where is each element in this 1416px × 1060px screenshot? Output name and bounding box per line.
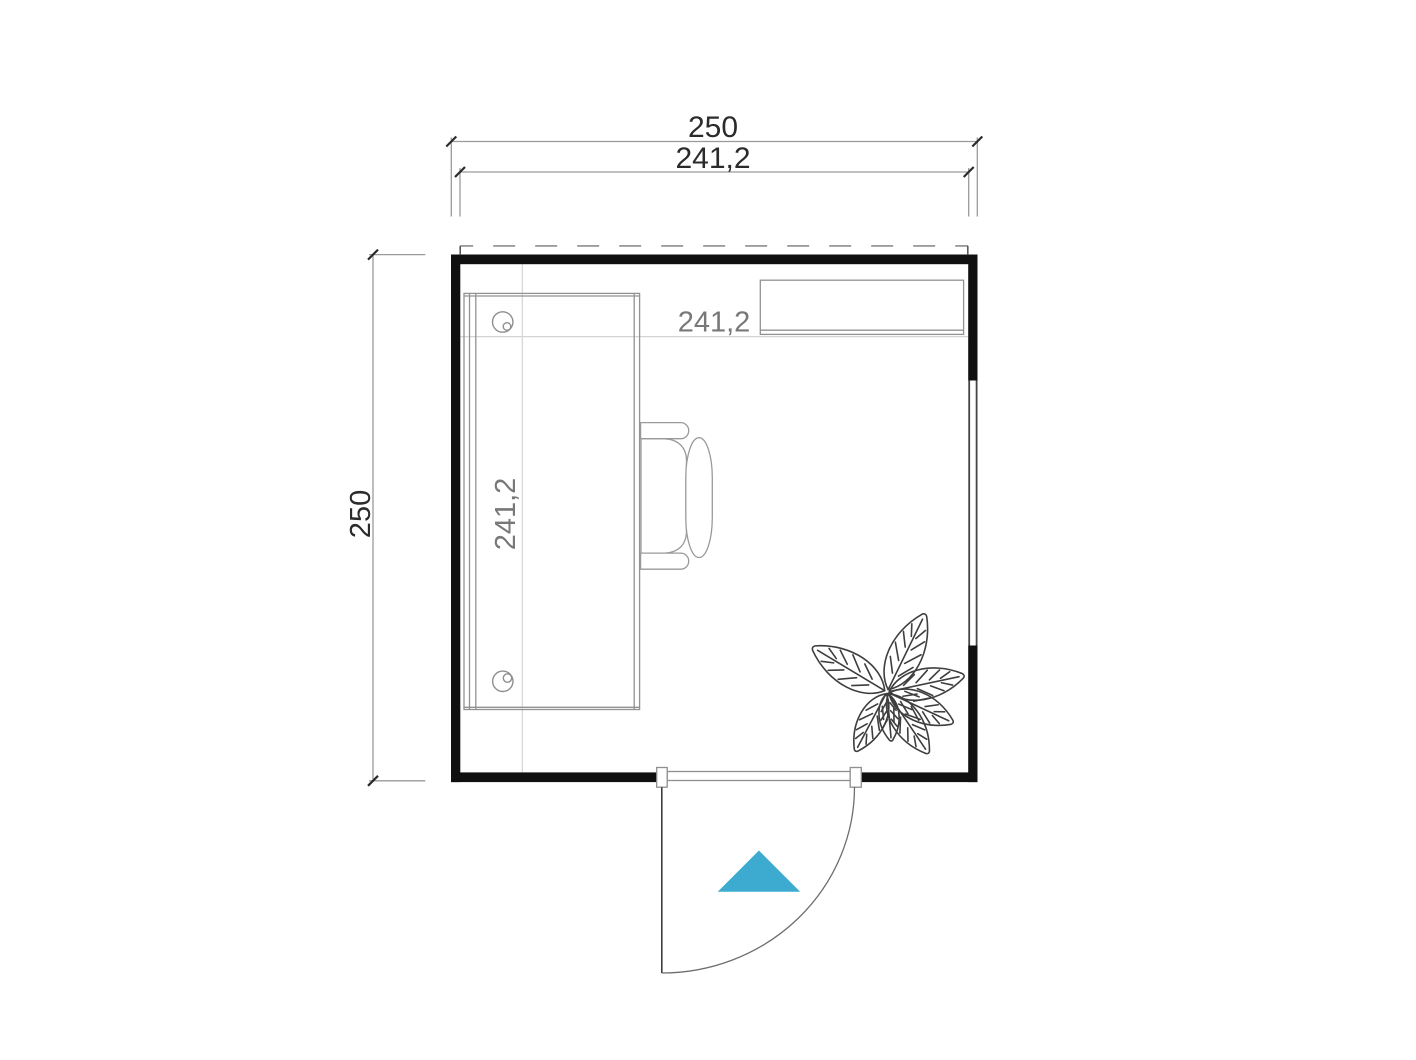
svg-text:241,2: 241,2 xyxy=(675,142,750,175)
svg-text:241,2: 241,2 xyxy=(490,478,522,551)
svg-text:250: 250 xyxy=(688,111,738,144)
svg-text:250: 250 xyxy=(345,490,377,538)
svg-text:241,2: 241,2 xyxy=(678,307,751,339)
